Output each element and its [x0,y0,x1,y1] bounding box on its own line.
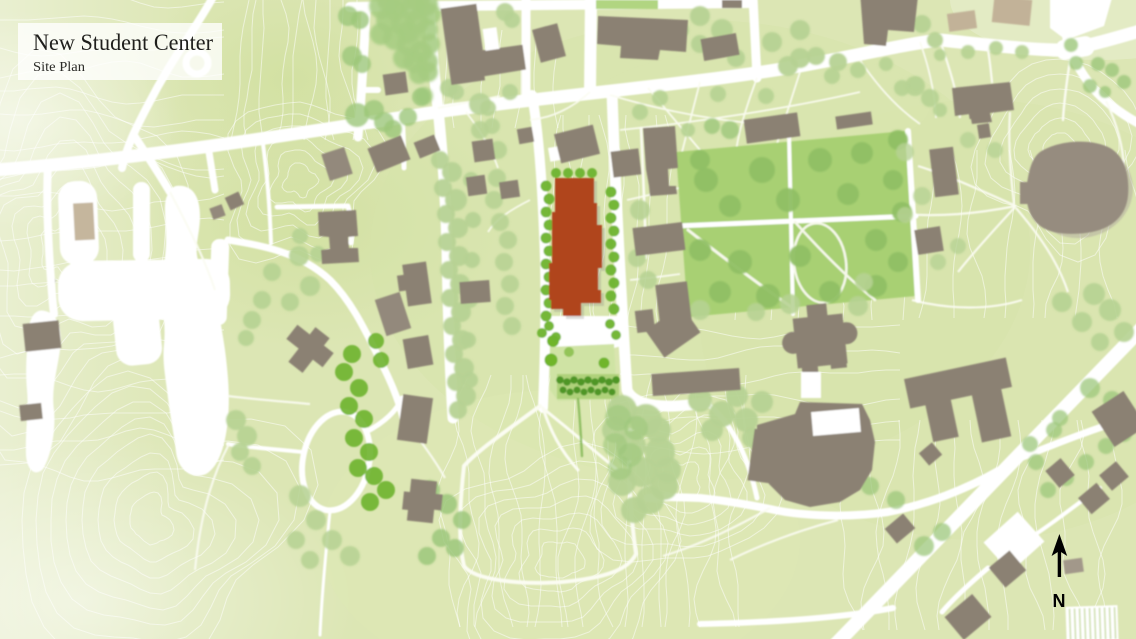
svg-text:N: N [1053,591,1066,611]
svg-text:Site Plan: Site Plan [33,60,85,75]
svg-text:New Student Center: New Student Center [33,30,213,55]
